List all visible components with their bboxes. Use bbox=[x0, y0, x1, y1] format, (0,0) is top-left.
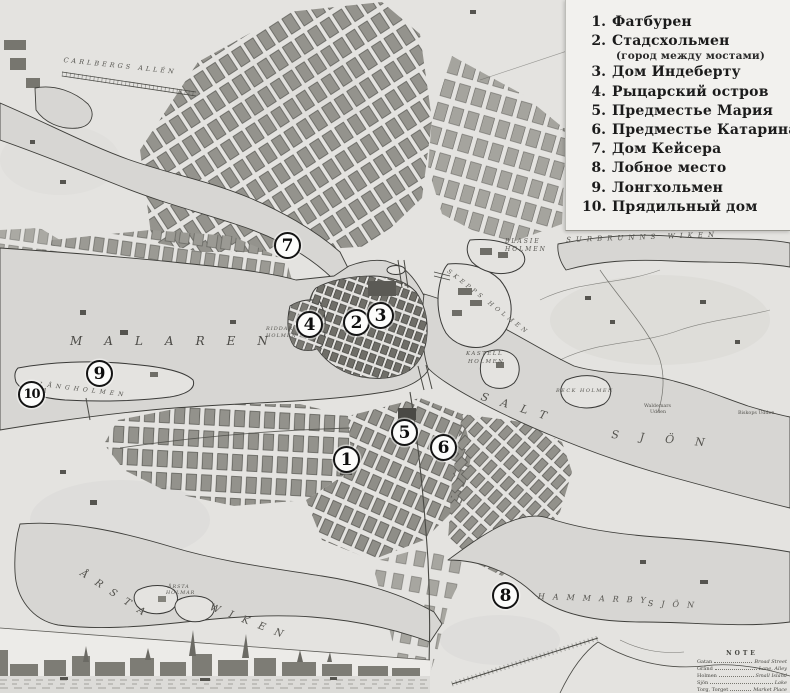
note-row: Gränd Lane, Alley bbox=[697, 666, 787, 673]
map-marker-8: 8 bbox=[492, 582, 519, 609]
legend-item-6: 6. Предместье Катарина bbox=[582, 122, 784, 138]
legend-item-label: Стадсхольмен bbox=[612, 33, 730, 49]
island-label-arsta-holmar-2: HOLMAR bbox=[166, 591, 195, 596]
legend-item-10: 10. Прядильный дом bbox=[582, 199, 784, 215]
note-term: Gatan bbox=[697, 659, 712, 666]
map-marker-1: 1 bbox=[333, 446, 360, 473]
legend-item-9: 9. Лонгхольмен bbox=[582, 180, 784, 196]
legend-item-number: 4. bbox=[582, 84, 606, 100]
legend-item-3: 3. Дом Индеберту bbox=[582, 64, 784, 80]
stockholm-historical-map: MALAREN SALT SJÖN SURBRUNNS WIKEN ÅRSTA … bbox=[0, 0, 790, 693]
island-label-blasieholmen-1: BLASIE bbox=[505, 238, 541, 245]
map-marker-3: 3 bbox=[367, 302, 394, 329]
map-marker-9: 9 bbox=[86, 360, 113, 387]
helgeandsholmen-islet bbox=[387, 266, 405, 275]
legend-item-7: 7. Дом Кейсера bbox=[582, 141, 784, 157]
legend-item-label: Дом Индеберту bbox=[612, 64, 741, 80]
map-marker-10: 10 bbox=[18, 381, 45, 408]
legend-item-2-sublabel: (город между мостами) bbox=[616, 50, 784, 62]
legend-item-number: 10. bbox=[582, 199, 606, 215]
map-marker-5: 5 bbox=[391, 419, 418, 446]
legend-item-2: 2. Стадсхольмен bbox=[582, 33, 784, 49]
note-term: Holmen bbox=[697, 673, 717, 680]
map-marker-2: 2 bbox=[343, 309, 370, 336]
legend-item-label: Предместье Мария bbox=[612, 103, 773, 119]
legend-item-number: 7. bbox=[582, 141, 606, 157]
point-label-biskops-udden: Biskops Udden bbox=[738, 411, 775, 416]
note-leader bbox=[730, 690, 751, 691]
legend-item-number: 5. bbox=[582, 103, 606, 119]
map-marker-7: 7 bbox=[274, 232, 301, 259]
legend-item-number: 3. bbox=[582, 64, 606, 80]
point-label-waldemars-udden-2: Udden bbox=[650, 410, 666, 415]
legend-item-1: 1. Фатбурен bbox=[582, 14, 784, 30]
note-leader bbox=[719, 676, 754, 677]
island-label-beckholmen: BECK HOLMEN bbox=[556, 388, 614, 394]
legend-item-number: 6. bbox=[582, 122, 606, 138]
map-marker-4: 4 bbox=[296, 311, 323, 338]
note-meaning: Lake bbox=[775, 680, 787, 687]
note-meaning: Small Island bbox=[756, 673, 787, 680]
legend-item-label: Рыцарский остров bbox=[612, 84, 769, 100]
note-term: Gränd bbox=[697, 666, 713, 673]
legend-panel: 1. Фатбурен 2. Стадсхольмен (город между… bbox=[565, 0, 790, 231]
island-label-riddarholmen-2: HOLMEN bbox=[266, 333, 297, 339]
water-label-hammarby-sjon: SJÖN bbox=[648, 599, 703, 610]
legend-item-5: 5. Предместье Мария bbox=[582, 103, 784, 119]
legend-item-number: 2. bbox=[582, 33, 606, 49]
legend-item-label: Прядильный дом bbox=[612, 199, 758, 215]
legend-item-number: 1. bbox=[582, 14, 606, 30]
note-title: NOTE bbox=[697, 650, 787, 657]
legend-item-number: 8. bbox=[582, 160, 606, 176]
legend-item-4: 4. Рыцарский остров bbox=[582, 84, 784, 100]
legend-item-label: Фатбурен bbox=[612, 14, 692, 30]
point-label-waldemars-udden-1: Waldemars bbox=[644, 404, 671, 409]
note-term: Torg, Torget bbox=[697, 687, 728, 693]
note-meaning: Market Place bbox=[753, 687, 787, 693]
note-row: Holmen Small Island bbox=[697, 673, 787, 680]
note-box: NOTE Gatan Broad Street Gränd Lane, Alle… bbox=[697, 650, 787, 693]
note-leader bbox=[714, 662, 752, 663]
note-leader bbox=[715, 669, 757, 670]
legend-item-label: Лонгхольмен bbox=[612, 180, 723, 196]
island-label-kastellholmen-2: HOLMEN bbox=[468, 359, 504, 365]
island-label-arsta-holmar-1: ÅRSTA bbox=[168, 585, 190, 590]
note-meaning: Lane, Alley bbox=[759, 666, 787, 673]
legend-item-label: Лобное место bbox=[612, 160, 726, 176]
legend-item-label: Предместье Катарина bbox=[612, 122, 790, 138]
legend-item-label: Дом Кейсера bbox=[612, 141, 721, 157]
note-leader bbox=[710, 683, 772, 684]
legend-item-8: 8. Лобное место bbox=[582, 160, 784, 176]
legend-item-number: 9. bbox=[582, 180, 606, 196]
island-label-riddarholmen-1: RIDDAR bbox=[266, 326, 293, 332]
note-term: Sjön bbox=[697, 680, 708, 687]
note-meaning: Broad Street bbox=[754, 659, 787, 666]
map-marker-6: 6 bbox=[430, 434, 457, 461]
note-row: Sjön Lake bbox=[697, 680, 787, 687]
water-label-malaren: MALAREN bbox=[70, 334, 290, 348]
note-row: Gatan Broad Street bbox=[697, 659, 787, 666]
island-label-kastellholmen-1: KASTELL bbox=[466, 351, 503, 357]
island-label-blasieholmen-2: HOLMEN bbox=[505, 246, 547, 253]
note-row: Torg, Torget Market Place bbox=[697, 687, 787, 693]
